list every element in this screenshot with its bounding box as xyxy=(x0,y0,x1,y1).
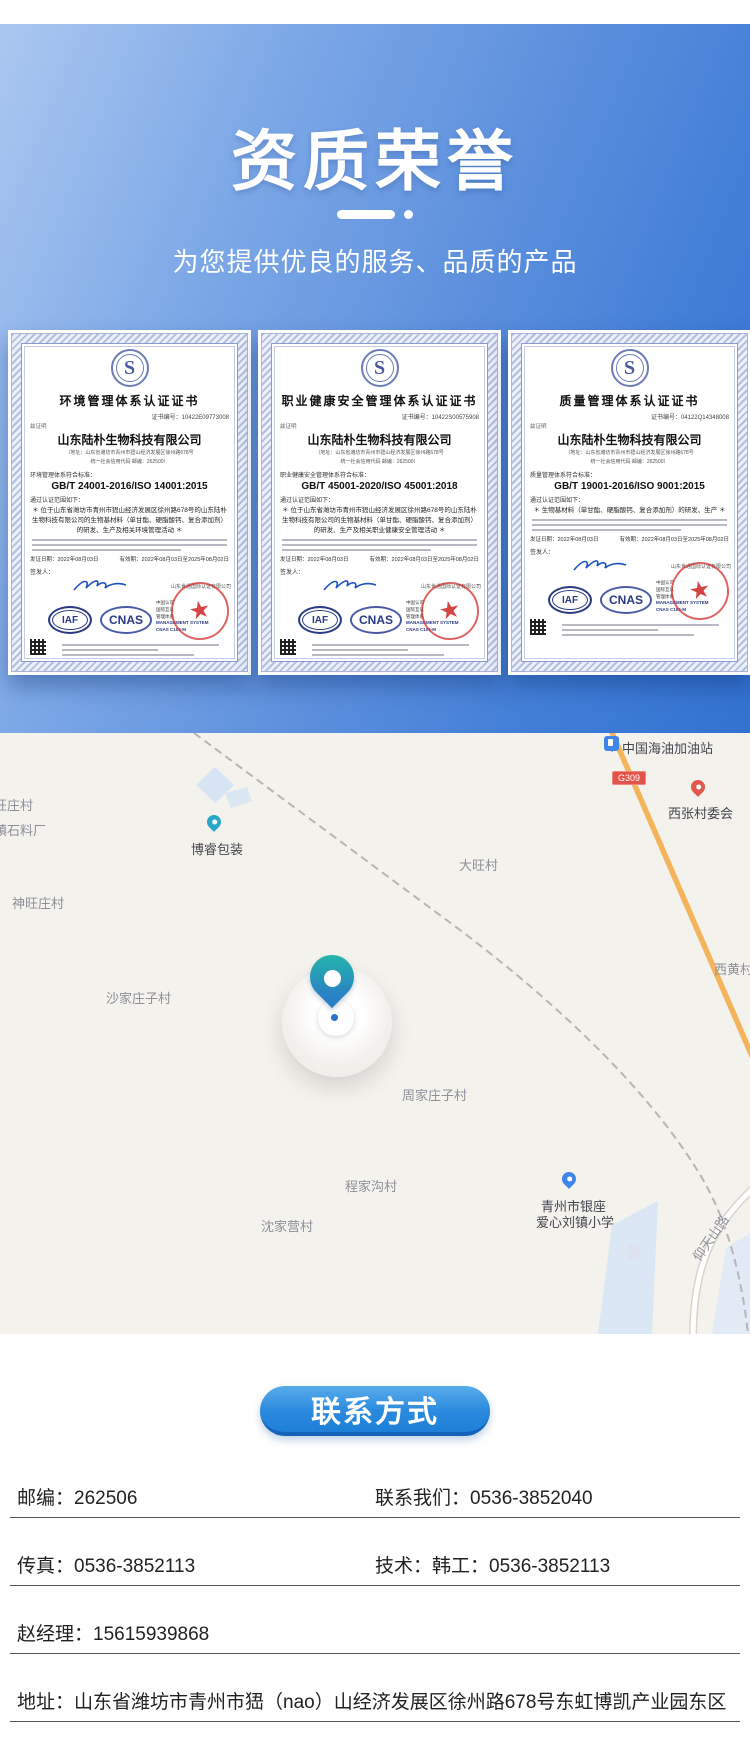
certification-scope: ＊ 生物基材料（单甘酯、硬脂酸钙、复合添加剂）的研发、生产 ＊ xyxy=(532,506,727,516)
accreditation-badges: IAF CNAS 中国认可 国际互认 管理体系 MANAGEMENT SYSTE… xyxy=(278,598,481,638)
accreditation-badges: IAF CNAS 中国认可 国际互认 管理体系 MANAGEMENT SYSTE… xyxy=(528,578,731,618)
fine-print-line xyxy=(62,644,219,647)
certifier-logo-letter: S xyxy=(624,357,635,380)
map-place-label: 大旺村 xyxy=(459,855,498,874)
signer-label: 签发人： xyxy=(530,547,737,556)
fine-print-line xyxy=(282,544,477,547)
iaf-logo-icon: IAF xyxy=(48,606,92,634)
contact-row: 邮编：262506联系我们：0536-3852040 xyxy=(10,1483,740,1518)
company-address-line2: 统一社会信用代码 邮编：262500） xyxy=(340,459,418,465)
certificate-number: 证书编号：10422E09773008 xyxy=(30,412,229,421)
contact-field: 技术：韩工：0536-3852113 xyxy=(368,1551,740,1586)
issue-date: 发证日期：2022年08月03日 xyxy=(280,555,348,563)
seal-star-icon: ★ xyxy=(187,597,213,625)
pin-hole xyxy=(324,970,341,987)
company-address-line1: （地址：山东省潍坊市青州市峱山经济发展区徐州路678号 xyxy=(315,450,443,456)
certificate-title: 环境管理体系认证证书 xyxy=(22,392,237,409)
company-address-line2: 统一社会信用代码 邮编：262500） xyxy=(90,459,168,465)
title-divider xyxy=(0,208,750,220)
valid-until: 有效期：2022年08月03日至2025年08月02日 xyxy=(370,555,479,563)
certificate-body: S 质量管理体系认证证书 证书编号：04122Q14348008 兹证明 山东陆… xyxy=(521,343,738,662)
contact-field: 地址：山东省潍坊市青州市峱（nao）山经济发展区徐州路678号东虹博凯产业园东区 xyxy=(10,1687,740,1722)
map-place-label: 程家沟村 xyxy=(345,1176,397,1195)
fine-print-line xyxy=(282,539,477,542)
company-address-line2: 统一社会信用代码 邮编：262500） xyxy=(590,459,668,465)
fine-print-line xyxy=(32,549,181,552)
certifier-logo-letter: S xyxy=(124,357,135,380)
contact-row: 传真：0536-3852113技术：韩工：0536-3852113 xyxy=(10,1551,740,1586)
page-title: 资质荣誉 xyxy=(0,108,750,204)
map-poi-label: 西张村委会 xyxy=(668,803,733,822)
hero-banner: 资质荣誉 为您提供优良的服务、品质的产品 S 环境管理体系认证证书 证书编号：1… xyxy=(0,24,750,733)
map-place-label: 旺庄村 xyxy=(0,795,33,814)
attest-label: 兹证明 xyxy=(30,422,237,430)
seal-star-icon: ★ xyxy=(687,577,713,605)
pin-anchor-dot xyxy=(331,1014,338,1021)
fine-print-line xyxy=(282,549,431,552)
map[interactable]: 中国海油加油站G309西张村委会旺庄村镇石料厂博睿包装大旺村神旺庄村西黄村沙家庄… xyxy=(0,733,750,1334)
qr-row xyxy=(30,639,229,659)
map-poi-label: 博睿包装 xyxy=(191,839,243,858)
cnas-logo-icon: CNAS xyxy=(350,606,402,634)
certificate-card: S 职业健康安全管理体系认证证书 证书编号：10422S00575908 兹证明… xyxy=(258,330,501,675)
fine-print-line xyxy=(562,634,694,637)
fine-print-line xyxy=(312,649,408,652)
map-place-label: 西黄村 xyxy=(714,959,750,978)
standard-code: GB/T 24001-2016/ISO 14001:2015 xyxy=(22,481,237,492)
fine-print-line xyxy=(312,644,469,647)
fine-print-line xyxy=(32,544,227,547)
page-subtitle: 为您提供优良的服务、品质的产品 xyxy=(0,242,750,279)
fine-print-line xyxy=(532,519,727,522)
top-white-strip xyxy=(0,0,750,24)
scope-intro: 通过认证范围如下： xyxy=(30,495,237,504)
accreditation-badges: IAF CNAS 中国认可 国际互认 管理体系 MANAGEMENT SYSTE… xyxy=(28,598,231,638)
contact-rows: 邮编：262506联系我们：0536-3852040传真：0536-385211… xyxy=(0,1483,750,1722)
qr-side-text xyxy=(52,639,229,659)
map-poi-label: 爱心刘镇小学 xyxy=(536,1212,614,1231)
contact-field: 联系我们：0536-3852040 xyxy=(368,1483,740,1518)
certificates-row: S 环境管理体系认证证书 证书编号：10422E09773008 兹证明 山东陆… xyxy=(8,330,750,675)
signer-label: 签发人： xyxy=(30,567,237,576)
fine-print-line xyxy=(62,649,158,652)
fine-print-line xyxy=(62,654,194,657)
signature-icon xyxy=(320,576,380,596)
fine-print-line xyxy=(312,654,444,657)
contact-field: 邮编：262506 xyxy=(10,1483,368,1518)
certificate-dates: 发证日期：2022年08月03日 有效期：2022年08月03日至2025年08… xyxy=(30,555,229,563)
certificate-number: 证书编号：10422S00575908 xyxy=(280,412,479,421)
map-place-label: 神旺庄村 xyxy=(12,893,64,912)
standard-code: GB/T 45001-2020/ISO 45001:2018 xyxy=(272,481,487,492)
signer-label: 签发人： xyxy=(280,567,487,576)
signature-icon xyxy=(570,556,630,576)
company-name: 山东陆朴生物科技有限公司 xyxy=(272,431,487,448)
valid-until: 有效期：2022年08月03日至2025年08月02日 xyxy=(620,535,729,543)
divider-dot xyxy=(404,210,413,219)
map-place-label: 镇石料厂 xyxy=(0,820,46,839)
qr-code-icon xyxy=(280,639,296,655)
standard-code: GB/T 19001-2016/ISO 9001:2015 xyxy=(522,481,737,492)
cnas-logo-icon: CNAS xyxy=(100,606,152,634)
company-name: 山东陆朴生物科技有限公司 xyxy=(22,431,237,448)
map-place-label: G309 xyxy=(612,771,646,785)
standard-label: 环境管理体系符合标准： xyxy=(30,470,237,479)
qr-code-icon xyxy=(30,639,46,655)
cnas-logo-icon: CNAS xyxy=(600,586,652,614)
scope-intro: 通过认证范围如下： xyxy=(530,495,737,504)
certificate-number: 证书编号：04122Q14348008 xyxy=(530,412,729,421)
company-name: 山东陆朴生物科技有限公司 xyxy=(522,431,737,448)
certificate-card: S 环境管理体系认证证书 证书编号：10422E09773008 兹证明 山东陆… xyxy=(8,330,251,675)
certifier-logo-letter: S xyxy=(374,357,385,380)
seal-star-icon: ★ xyxy=(437,597,463,625)
certificate-card: S 质量管理体系认证证书 证书编号：04122Q14348008 兹证明 山东陆… xyxy=(508,330,750,675)
fine-print-line xyxy=(532,529,681,532)
gas-station-icon xyxy=(604,736,619,751)
qr-row xyxy=(530,619,729,639)
certificate-title: 质量管理体系认证证书 xyxy=(522,392,737,409)
contact-row: 赵经理：15615939868 xyxy=(10,1619,740,1654)
qr-side-text xyxy=(302,639,479,659)
attest-label: 兹证明 xyxy=(530,422,737,430)
fine-print-line xyxy=(562,629,658,632)
company-address-line1: （地址：山东省潍坊市青州市峱山经济发展区徐州路678号 xyxy=(565,450,693,456)
iaf-logo-icon: IAF xyxy=(548,586,592,614)
fine-print-line xyxy=(32,539,227,542)
company-address: （地址：山东省潍坊市青州市峱山经济发展区徐州路678号 统一社会信用代码 邮编：… xyxy=(272,449,487,466)
certificate-dates: 发证日期：2022年08月03日 有效期：2022年08月03日至2025年08… xyxy=(530,535,729,543)
company-address: （地址：山东省潍坊市青州市峱山经济发展区徐州路678号 统一社会信用代码 邮编：… xyxy=(522,449,737,466)
certificate-body: S 环境管理体系认证证书 证书编号：10422E09773008 兹证明 山东陆… xyxy=(21,343,238,662)
certificate-title: 职业健康安全管理体系认证证书 xyxy=(272,392,487,409)
map-place-label: 沙家庄子村 xyxy=(106,988,171,1007)
valid-until: 有效期：2022年08月03日至2025年08月02日 xyxy=(120,555,229,563)
contact-field: 赵经理：15615939868 xyxy=(10,1619,740,1654)
standard-label: 职业健康安全管理体系符合标准： xyxy=(280,470,487,479)
company-address-line1: （地址：山东省潍坊市青州市峱山经济发展区徐州路678号 xyxy=(65,450,193,456)
qr-code-icon xyxy=(530,619,546,635)
map-place-label: 沈家营村 xyxy=(261,1216,313,1235)
qr-row xyxy=(280,639,479,659)
map-poi-label: 中国海油加油站 xyxy=(622,738,713,757)
fine-print-line xyxy=(532,524,727,527)
contact-section: 联系方式 邮编：262506联系我们：0536-3852040传真：0536-3… xyxy=(0,1334,750,1745)
certifier-logo: S xyxy=(611,349,649,387)
certification-scope: ＊ 位于山东省潍坊市青州市峱山经济发展区徐州路678号的山东陆朴生物科技有限公司… xyxy=(282,506,477,536)
map-place-label: 周家庄子村 xyxy=(402,1085,467,1104)
contact-field: 传真：0536-3852113 xyxy=(10,1551,368,1586)
certificate-body: S 职业健康安全管理体系认证证书 证书编号：10422S00575908 兹证明… xyxy=(271,343,488,662)
signature-icon xyxy=(70,576,130,596)
issue-date: 发证日期：2022年08月03日 xyxy=(530,535,598,543)
certifier-logo: S xyxy=(111,349,149,387)
scope-intro: 通过认证范围如下： xyxy=(280,495,487,504)
contact-button[interactable]: 联系方式 xyxy=(260,1386,490,1436)
certification-scope: ＊ 位于山东省潍坊市青州市峱山经济发展区徐州路678号的山东陆朴生物科技有限公司… xyxy=(32,506,227,536)
iaf-logo-icon: IAF xyxy=(298,606,342,634)
divider-bar xyxy=(337,210,395,219)
contact-row: 地址：山东省潍坊市青州市峱（nao）山经济发展区徐州路678号东虹博凯产业园东区 xyxy=(10,1687,740,1722)
fine-print-line xyxy=(562,624,719,627)
standard-label: 质量管理体系符合标准： xyxy=(530,470,737,479)
qr-side-text xyxy=(552,619,729,639)
issue-date: 发证日期：2022年08月03日 xyxy=(30,555,98,563)
company-address: （地址：山东省潍坊市青州市峱山经济发展区徐州路678号 统一社会信用代码 邮编：… xyxy=(22,449,237,466)
certificate-dates: 发证日期：2022年08月03日 有效期：2022年08月03日至2025年08… xyxy=(280,555,479,563)
attest-label: 兹证明 xyxy=(280,422,487,430)
certifier-logo: S xyxy=(361,349,399,387)
